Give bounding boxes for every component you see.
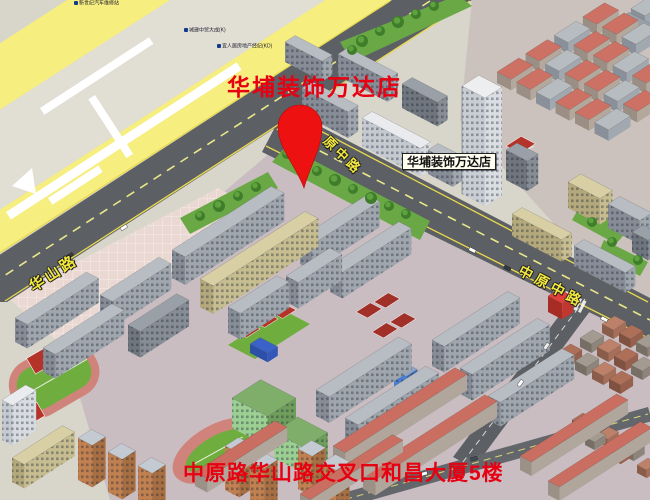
poi-label: 新世纪汽车维修站 <box>74 1 119 6</box>
poi-dot-icon <box>184 28 188 32</box>
store-callout-box: 华埔装饰万达店 <box>402 153 496 170</box>
map-pin-icon <box>276 104 324 192</box>
address-banner: 中原路华山路交叉口和昌大厦5楼 <box>183 463 504 484</box>
poi-label-text: 城建中贸大成(K) <box>189 27 226 33</box>
poi-label: 宜人居房地产经纪(KD) <box>217 44 272 49</box>
map-pin-shape <box>278 105 322 188</box>
poi-label: 城建中贸大成(K) <box>184 28 226 33</box>
store-title: 华埔装饰万达店 <box>227 76 402 99</box>
poi-dot-icon <box>217 44 221 48</box>
poi-label-text: 新世纪汽车维修站 <box>79 0 119 6</box>
poi-label-text: 宜人居房地产经纪(KD) <box>222 43 272 49</box>
poi-dot-icon <box>74 1 78 5</box>
map: 新世纪汽车维修站 城建中贸大成(K) 宜人居房地产经纪(KD) 华山路 原中路 … <box>0 0 650 500</box>
